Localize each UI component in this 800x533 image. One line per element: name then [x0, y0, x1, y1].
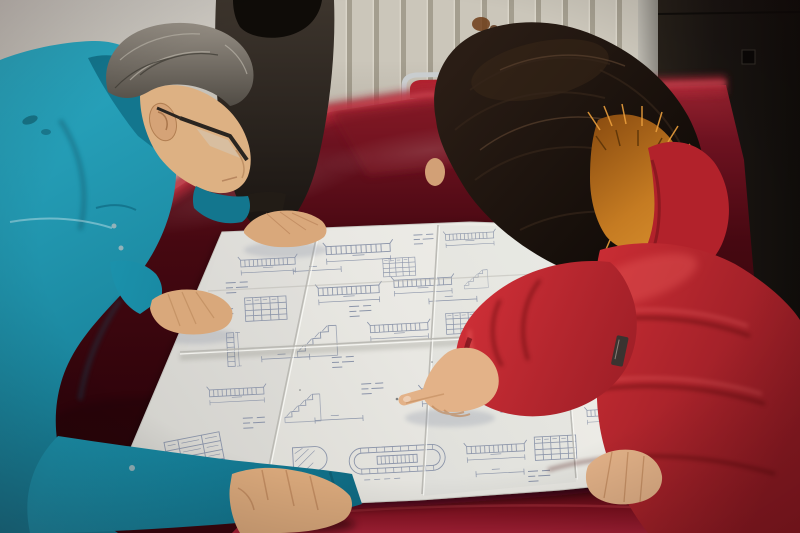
- photo-canvas: plaster wall wall radiator with vertical…: [0, 0, 800, 533]
- photo-blueprint-review: plaster wall wall radiator with vertical…: [0, 0, 800, 533]
- vignette: [0, 0, 800, 533]
